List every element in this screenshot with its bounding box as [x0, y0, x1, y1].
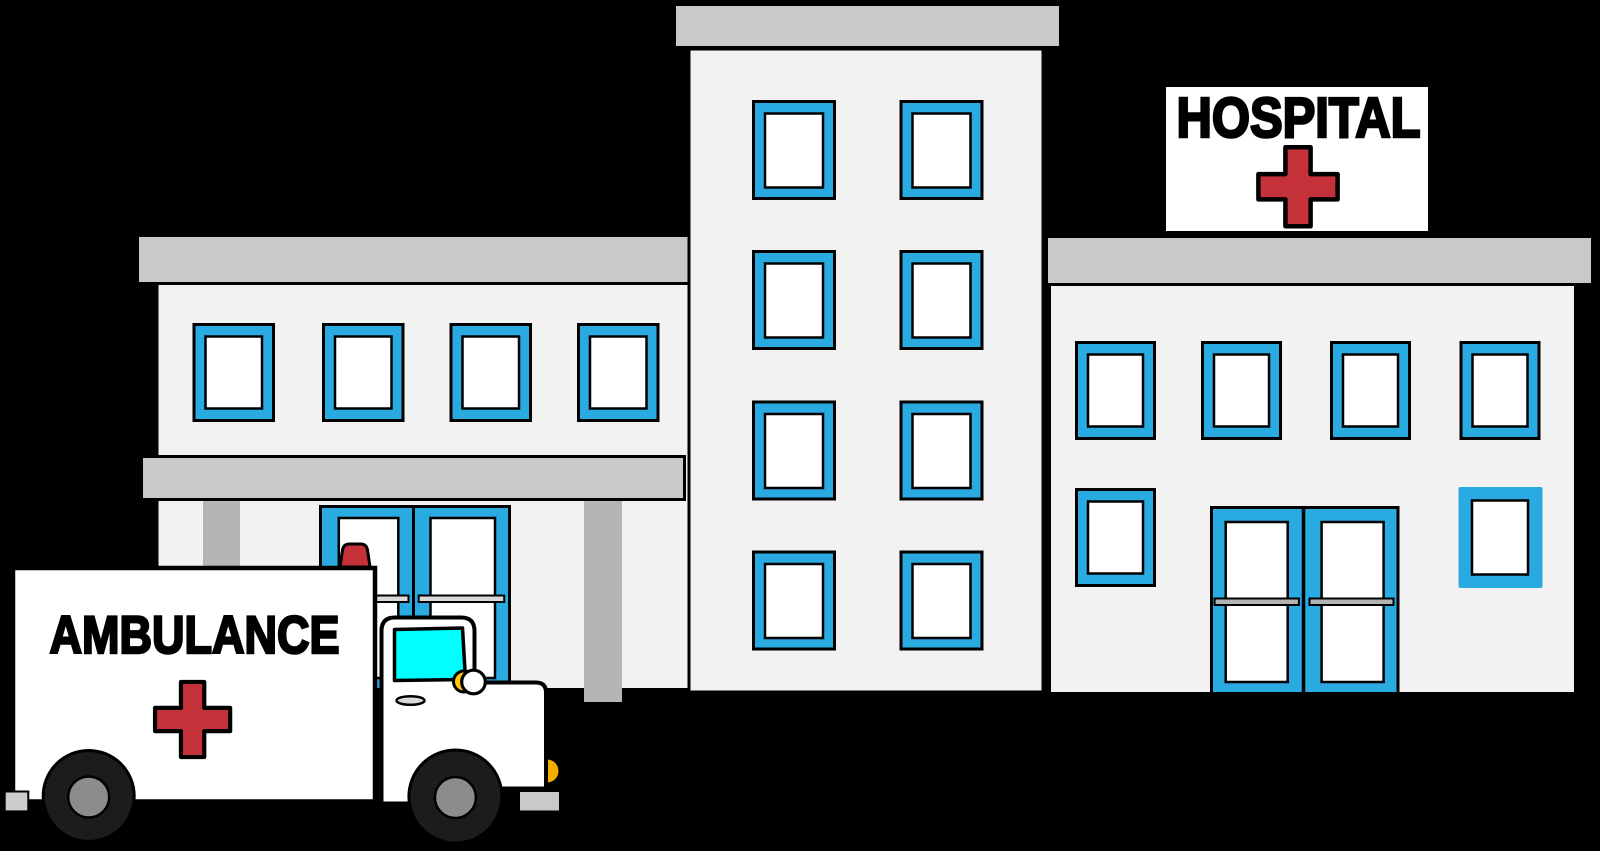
svg-text:AMBULANCE: AMBULANCE: [50, 607, 340, 665]
svg-text:HOSPITAL: HOSPITAL: [1177, 86, 1421, 149]
